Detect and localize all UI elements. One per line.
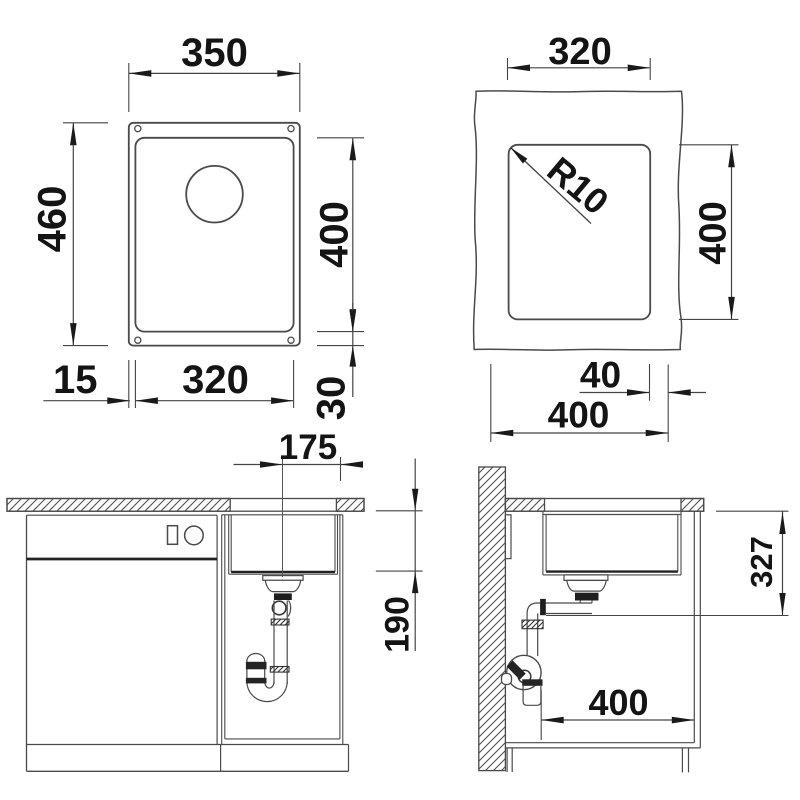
svg-text:460: 460: [31, 186, 75, 253]
svg-text:400: 400: [548, 395, 610, 436]
svg-text:190: 190: [379, 596, 417, 653]
svg-text:400: 400: [588, 682, 648, 723]
svg-text:175: 175: [279, 428, 337, 467]
svg-text:30: 30: [310, 376, 354, 421]
svg-text:15: 15: [53, 358, 98, 402]
svg-text:320: 320: [548, 31, 611, 73]
svg-text:350: 350: [181, 31, 248, 75]
svg-text:40: 40: [580, 355, 621, 396]
svg-text:400: 400: [693, 201, 735, 264]
svg-text:400: 400: [313, 201, 357, 268]
svg-text:327: 327: [744, 536, 779, 588]
svg-text:320: 320: [182, 358, 249, 402]
